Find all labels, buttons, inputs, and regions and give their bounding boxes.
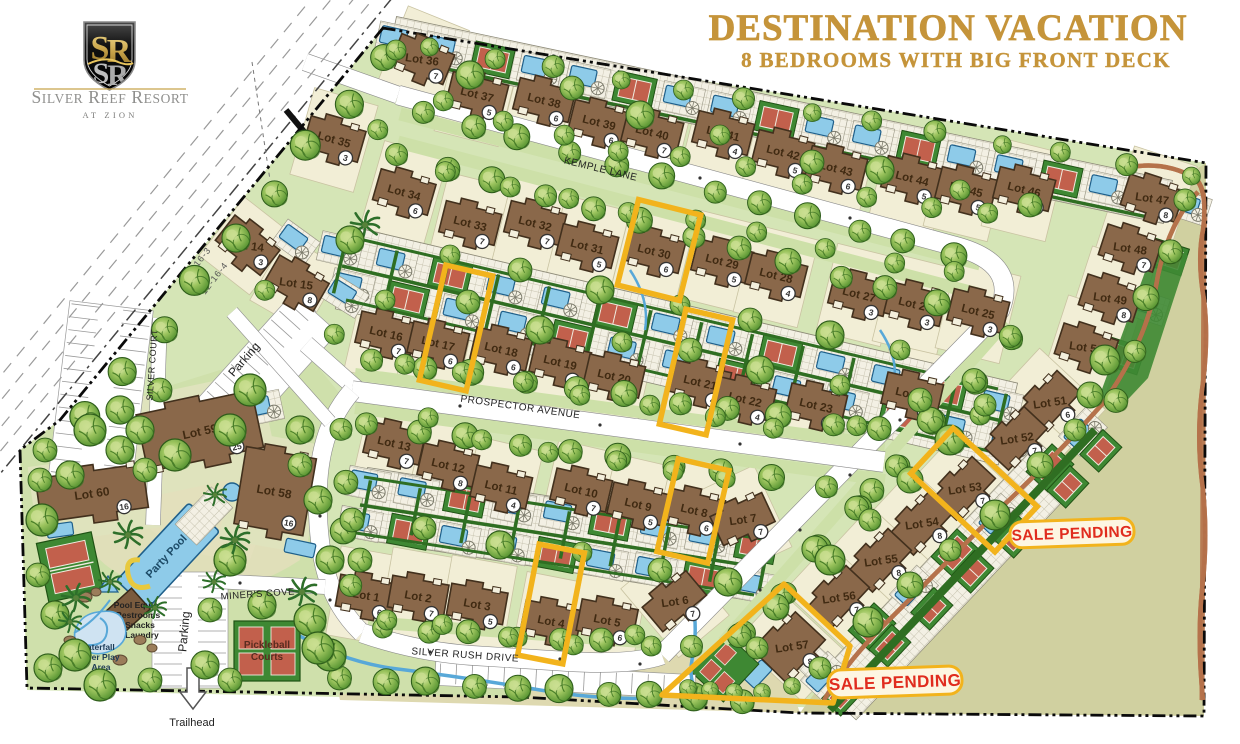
svg-text:8 BEDROOMS WITH BIG FRONT DECK: 8 BEDROOMS WITH BIG FRONT DECK [741, 48, 1171, 72]
svg-text:AT ZION: AT ZION [82, 110, 137, 120]
svg-text:Trailhead: Trailhead [169, 717, 214, 729]
svg-text:Pickleball: Pickleball [244, 640, 290, 651]
svg-text:16: 16 [283, 517, 294, 529]
svg-text:Snacks: Snacks [125, 620, 155, 630]
svg-text:Courts: Courts [251, 652, 284, 663]
svg-text:16: 16 [119, 501, 130, 512]
svg-text:DESTINATION VACATION: DESTINATION VACATION [709, 8, 1188, 49]
